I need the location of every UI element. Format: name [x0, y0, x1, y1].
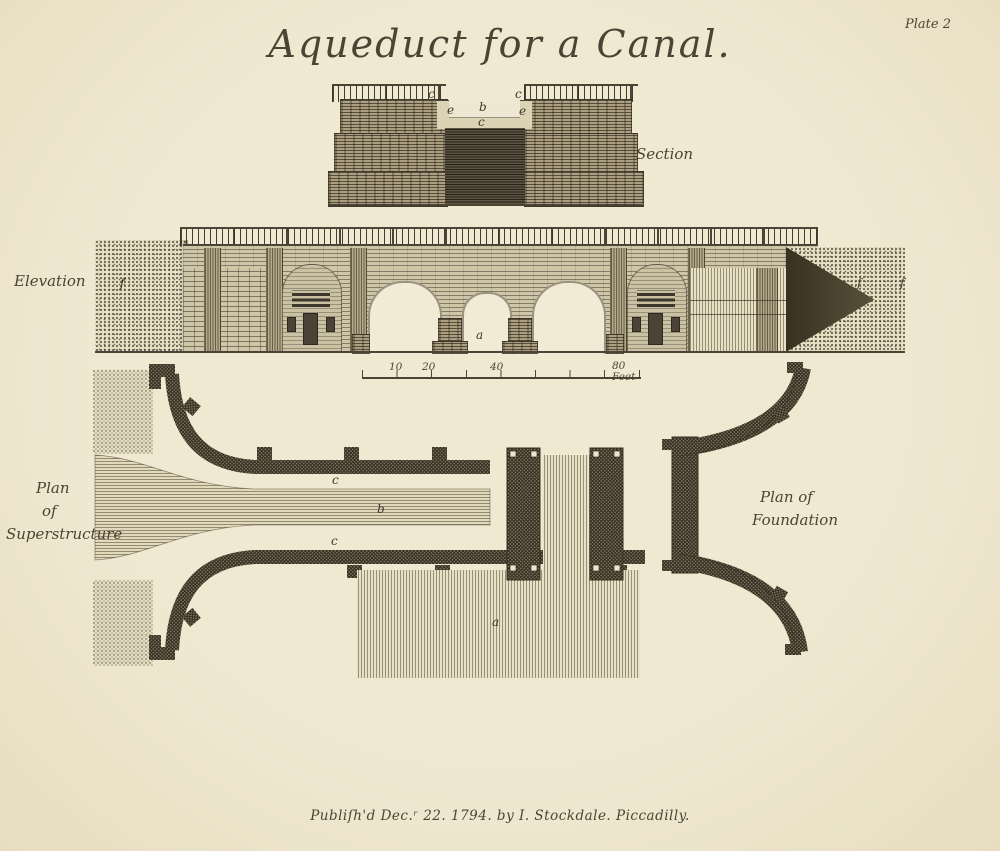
- elevation-ground-line: [95, 351, 905, 353]
- window-right-a: [632, 317, 641, 332]
- plan-drawing: [85, 362, 915, 708]
- plan-buttress: [257, 447, 272, 460]
- plan-pier: [507, 448, 540, 580]
- grille-right: [637, 290, 675, 307]
- section-pier-right: [524, 133, 638, 173]
- plan-wall-horn: [149, 635, 161, 647]
- door-right: [648, 313, 663, 345]
- letter-b-section: b: [479, 101, 487, 113]
- plan-foundation-label-line2: Foundation: [752, 511, 838, 529]
- plan-wing-top: [685, 368, 803, 448]
- elevation-left-bank: [95, 240, 188, 352]
- letter-e-left: e: [447, 104, 454, 116]
- plan-superstructure-label-line2: of: [42, 502, 57, 520]
- plan-foundation-wall: [672, 437, 698, 573]
- plan-wall-horn: [149, 377, 161, 389]
- elevation-pilaster: [204, 248, 221, 352]
- plan-superstructure-label-line3: Superstructure: [6, 525, 122, 543]
- section-core: [445, 128, 525, 205]
- plan-foundation-tab: [662, 560, 673, 571]
- elevation-cut-strip: [756, 268, 778, 352]
- letter-c-left: c: [428, 88, 435, 100]
- section-pier-left: [334, 133, 448, 173]
- imprint-line: Publiſh'd Dec.ʳ 22. 1794. by I. Stockdal…: [300, 808, 700, 824]
- plan-pier: [590, 448, 623, 580]
- section-pier-left: [340, 99, 448, 135]
- window-right-b: [671, 317, 680, 332]
- plan-bank-top: [93, 370, 153, 454]
- plan-buttress: [432, 447, 447, 460]
- plan-foundation-tab: [662, 439, 673, 450]
- letter-e-right: e: [519, 105, 526, 117]
- letter-c-bottom: c: [478, 116, 485, 128]
- page-title: Aqueduct for a Canal.: [250, 22, 750, 66]
- section-ground-line: [328, 204, 642, 206]
- letter-c-plan-bottom: c: [331, 535, 338, 547]
- plate-number: Plate 2: [905, 17, 951, 32]
- letter-a-elevation: a: [476, 329, 483, 341]
- elevation-pilaster: [266, 248, 283, 352]
- plan-wall-horn: [149, 364, 175, 377]
- letter-a-plan: a: [492, 616, 499, 628]
- grille-left: [292, 290, 330, 307]
- letter-f-right-outer: f: [900, 277, 904, 289]
- elevation-arch-left: [368, 281, 442, 354]
- plan-wing-bottom: [685, 562, 800, 652]
- door-left: [303, 313, 318, 345]
- plan-superstructure-label-line1: Plan: [36, 479, 70, 497]
- plan-wing-tab: [785, 644, 801, 655]
- letter-c-right: c: [515, 88, 522, 100]
- section-label: Section: [636, 145, 693, 163]
- window-left-b: [326, 317, 335, 332]
- elevation-label: Elevation: [14, 272, 86, 290]
- plan-foundation-label-line1: Plan of: [760, 488, 813, 506]
- plan-buttress: [344, 447, 359, 460]
- elevation-arch-right: [532, 281, 606, 354]
- plan-bank-bottom: [93, 580, 153, 666]
- letter-f-right-inner: f: [857, 277, 861, 289]
- letter-b-plan: b: [377, 503, 385, 515]
- section-pier-left: [328, 171, 448, 207]
- engraved-plate: Aqueduct for a Canal. Plate 2 c c e b e …: [0, 0, 1000, 851]
- plan-wall-horn: [149, 647, 175, 660]
- window-left-a: [287, 317, 296, 332]
- plan-wing-tab: [787, 362, 803, 373]
- section-pier-right: [524, 99, 632, 135]
- cut-string-line: [690, 300, 788, 301]
- letter-f-left: f: [120, 277, 124, 289]
- cut-string-line: [690, 314, 788, 315]
- letter-c-plan-top: c: [332, 474, 339, 486]
- section-pier-right: [524, 171, 644, 207]
- elevation-abutment: [183, 268, 268, 352]
